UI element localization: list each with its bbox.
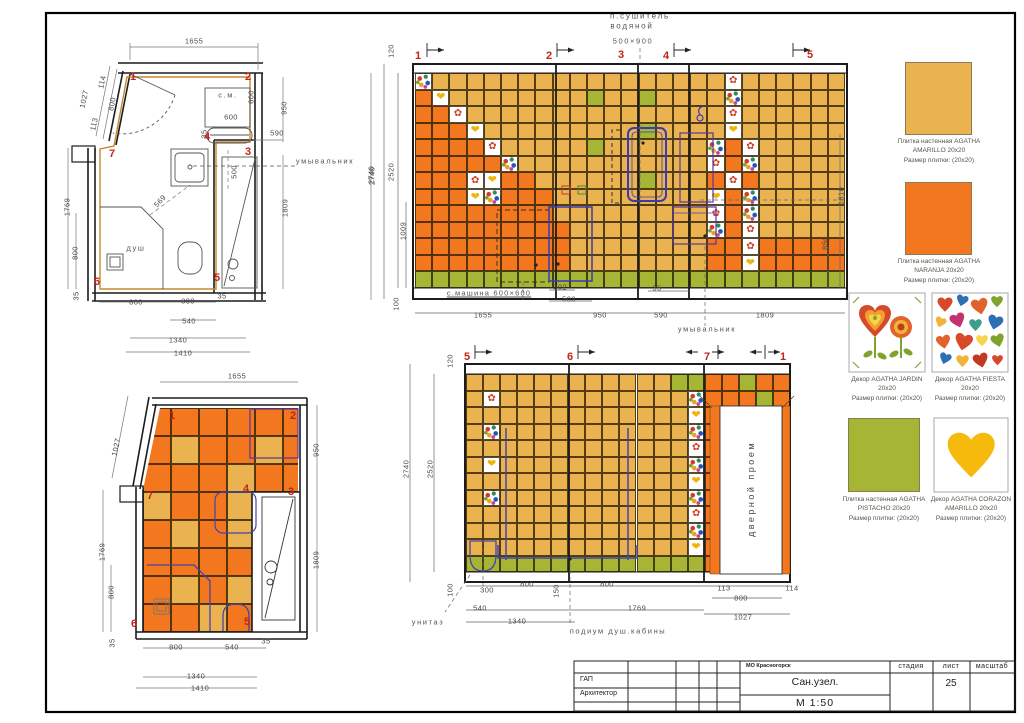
sheet-column-label: лист: [943, 663, 960, 670]
role-gap-label: ГАП: [580, 676, 593, 683]
drawing-scale: М 1:50: [796, 697, 834, 709]
title-block: ГАП Архитектор МО Красногорск Сан.узел. …: [0, 0, 1024, 723]
sheet-number: 25: [945, 678, 956, 689]
object-title: Сан.узел.: [792, 676, 839, 688]
drawing-sheet: ✿❤✿✿❤❤✿✿✿✿❤✿❤❤✿✿✿❤✿❤✿❤❤✿❤: [0, 0, 1024, 723]
org-name: МО Красногорск: [746, 663, 791, 669]
scale-column-label: масштаб: [976, 663, 1008, 670]
role-architect-label: Архитектор: [580, 690, 617, 697]
stage-column-label: стадия: [898, 663, 923, 670]
